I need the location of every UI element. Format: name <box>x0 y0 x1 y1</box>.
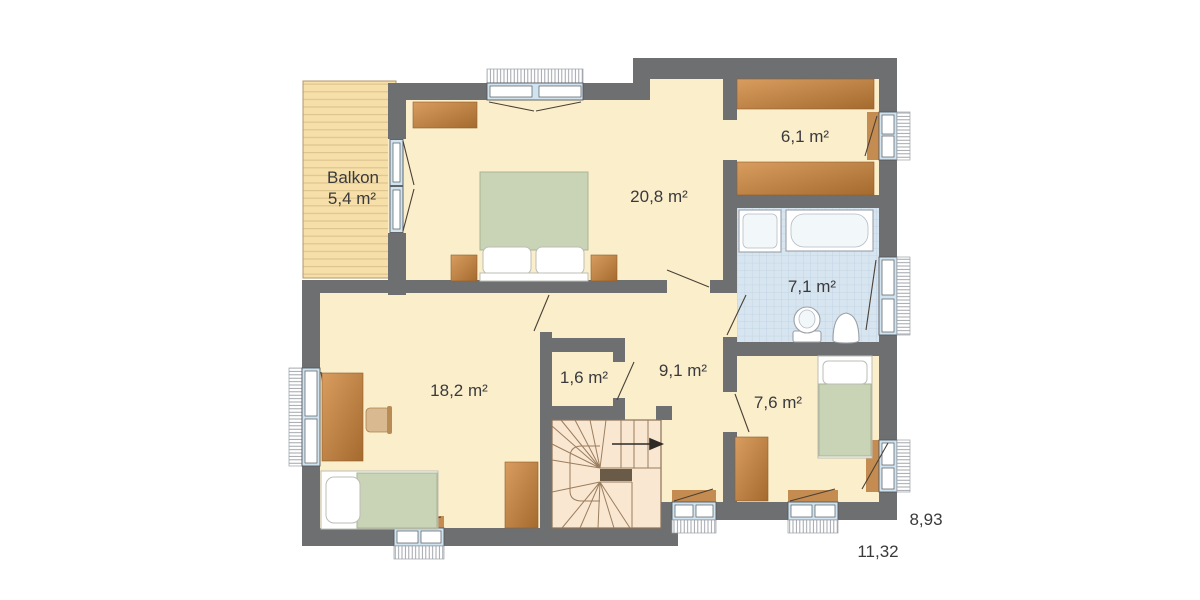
pillow <box>536 247 584 274</box>
pillow <box>823 361 867 384</box>
floor-plan-page: Balkon 5,4 m² <box>0 0 1200 600</box>
window-sill <box>672 490 716 502</box>
room-label-small-room: 7,6 m² <box>754 393 803 412</box>
desk <box>322 373 363 461</box>
headboard <box>480 273 588 281</box>
roller-shutter-icon <box>788 520 838 533</box>
window-small-room-bottom <box>788 489 838 533</box>
room-label-bathroom: 7,1 m² <box>788 277 837 296</box>
room-label-hallway: 9,1 m² <box>659 361 708 380</box>
room-label-balcony-name: Balkon <box>327 168 379 187</box>
room-label-balcony-area: 5,4 m² <box>328 189 377 208</box>
room-label-bedroom: 20,8 m² <box>630 187 688 206</box>
dimension-depth: 8,93 <box>909 510 942 529</box>
shower <box>739 210 781 252</box>
staircase <box>552 420 662 528</box>
wardrobe <box>735 437 768 501</box>
roller-shutter-icon <box>897 440 910 492</box>
roller-shutter-icon <box>487 69 583 83</box>
pillow <box>326 477 360 523</box>
wardrobe <box>737 79 874 109</box>
window-dressing-right <box>865 112 910 160</box>
roller-shutter-icon <box>394 546 444 559</box>
single-bed <box>321 471 438 529</box>
floor-plan-drawing: Balkon 5,4 m² <box>0 0 1200 600</box>
dresser <box>413 102 477 128</box>
wardrobe <box>505 462 538 528</box>
desk-chair <box>366 406 392 434</box>
roller-shutter-icon <box>897 257 910 335</box>
nightstand <box>591 255 617 281</box>
window-sill <box>788 490 838 502</box>
dimension-width: 11,32 <box>857 542 898 561</box>
toilet <box>793 307 821 342</box>
roller-shutter-icon <box>289 368 302 466</box>
window-sill <box>867 112 879 160</box>
balcony: Balkon 5,4 m² <box>303 81 396 278</box>
pillow <box>483 247 531 274</box>
single-bed <box>818 356 872 458</box>
nightstand <box>451 255 477 281</box>
bathtub <box>786 210 873 251</box>
room-label-kids-room: 18,2 m² <box>430 381 488 400</box>
roller-shutter-icon <box>897 112 910 160</box>
room-label-closet: 1,6 m² <box>560 368 609 387</box>
wardrobe <box>737 162 874 195</box>
room-label-dressing: 6,1 m² <box>781 127 830 146</box>
window-hallway-bottom <box>672 489 716 533</box>
roller-shutter-icon <box>672 520 716 533</box>
